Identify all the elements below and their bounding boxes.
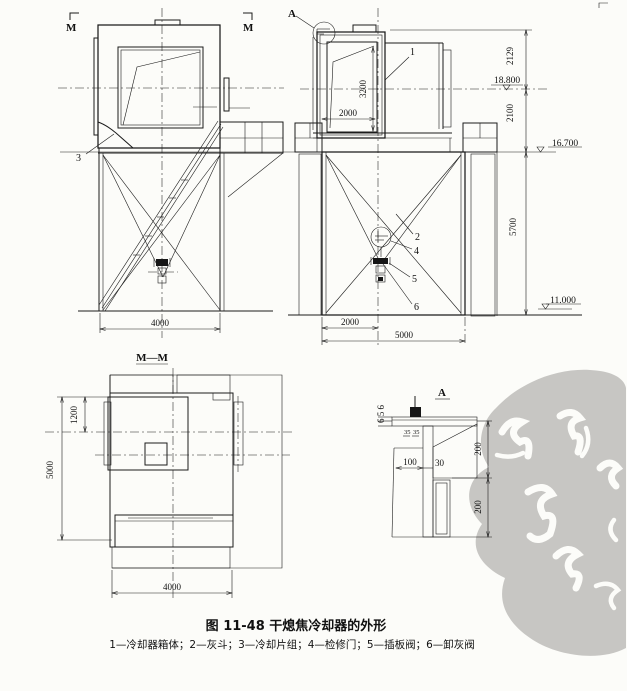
weld-block (410, 407, 421, 417)
dim-left-base: 4000 (100, 313, 220, 333)
svg-text:4000: 4000 (163, 582, 182, 592)
outer-boundary (110, 375, 282, 568)
dim-detail-30: 30 (423, 458, 445, 468)
level-center: 18.800 (494, 76, 520, 86)
svg-text:200: 200 (473, 500, 483, 514)
upper-duct-plan (108, 397, 188, 470)
lower-duct-plan (115, 515, 233, 547)
part-1-leader (385, 57, 409, 80)
slide-gate-and-ash-valve (371, 247, 390, 282)
ladder-left (299, 154, 321, 315)
channel-section (433, 480, 450, 537)
dim-section-offset: 1200 (57, 397, 108, 432)
grating-strip (392, 417, 477, 426)
figure-legend: 1—冷却器箱体；2—灰斗；3—冷却片组；4—检修门；5—插板阀；6—卸灰阀 (109, 638, 475, 651)
part-4-leader (391, 241, 412, 249)
part-3-leader (86, 134, 114, 154)
center-port (145, 443, 167, 465)
svg-text:3200: 3200 (358, 80, 368, 99)
door-window (327, 42, 377, 132)
section-cut-mark-left (70, 13, 79, 20)
access-window-outer (118, 47, 203, 128)
dim-section-width: 4000 (112, 570, 232, 598)
svg-text:2000: 2000 (341, 317, 360, 327)
part-label-4: 4 (414, 246, 419, 257)
part-label-6: 6 (414, 302, 419, 313)
part-label-3: 3 (76, 153, 81, 164)
svg-text:100: 100 (403, 457, 417, 467)
svg-text:5000: 5000 (45, 461, 55, 480)
section-marker-right-label: M (243, 22, 254, 34)
svg-text:5700: 5700 (508, 218, 518, 237)
detail-a-circle (313, 22, 335, 44)
part-5-leader (389, 263, 410, 277)
detail-view-a: A 6 5 6 35 35 100 30 (376, 387, 492, 537)
right-tab (224, 78, 229, 111)
inspection-door (371, 227, 391, 247)
svg-text:2100: 2100 (505, 104, 515, 123)
dim-plate-layers: 6 5 6 (376, 405, 386, 424)
top-walkway-right (177, 375, 230, 393)
svg-text:200: 200 (473, 442, 483, 456)
top-walkway-left (110, 375, 173, 393)
part-label-2: 2 (415, 232, 420, 243)
section-view-title: M—M (136, 352, 168, 364)
right-elevation-view: A 1 3200 (60, 8, 582, 345)
detail-view-title: A (438, 387, 446, 399)
body-right-flange (443, 50, 451, 127)
top-cap (155, 20, 180, 25)
detail-a-leader (296, 16, 314, 28)
dim-gap-right: 35 (413, 429, 420, 436)
svg-text:2000: 2000 (339, 108, 358, 118)
watermark-stamp (469, 370, 626, 656)
dim-door-width: 2000 (322, 108, 375, 119)
platform-right-right-view (463, 123, 497, 152)
part-6-leader (383, 264, 412, 304)
stair (99, 121, 223, 311)
column-section (423, 426, 433, 537)
dim-detail-100: 100 (396, 457, 423, 468)
section-marker-left-label: M (66, 22, 77, 34)
gusset-plate (433, 424, 477, 478)
svg-text:1200: 1200 (69, 406, 79, 425)
left-elevation-view: M M 3 (58, 8, 284, 338)
door-flap-line (123, 52, 200, 125)
figure-caption: 图 11-48 干熄焦冷却器的外形 1—冷却器箱体；2—灰斗；3—冷却片组；4—… (109, 618, 475, 651)
x-bracing-right (326, 155, 461, 313)
svg-text:30: 30 (435, 458, 445, 468)
part-label-5: 5 (412, 274, 417, 285)
page-artifact (599, 3, 608, 8)
part-label-1: 1 (410, 47, 415, 58)
ladder-right (471, 154, 495, 316)
drawing-page: M M 3 (0, 0, 627, 691)
cooler-box-outline (98, 25, 220, 148)
level-ground: 11.000 (550, 296, 576, 306)
top-cap-right (353, 25, 376, 32)
section-cut-mark-right (243, 13, 252, 20)
svg-text:2129: 2129 (505, 47, 515, 66)
svg-text:5000: 5000 (395, 330, 414, 340)
support-box-right (322, 152, 465, 315)
platform-grid (220, 122, 283, 197)
dim-gap-left: 35 (404, 429, 411, 436)
engineering-drawing: M M 3 (0, 0, 627, 691)
level-platform: 16.700 (552, 139, 578, 149)
discharge-valve-left (148, 258, 178, 283)
svg-text:4000: 4000 (151, 318, 170, 328)
section-view-mm: M—M 1200 5000 (45, 352, 292, 600)
cooling-fin-group (98, 122, 133, 148)
bottom-walkway (112, 547, 230, 568)
detail-a-callout-label: A (288, 8, 296, 20)
right-tab-plan (234, 402, 243, 465)
figure-title: 图 11-48 干熄焦冷却器的外形 (206, 618, 387, 634)
